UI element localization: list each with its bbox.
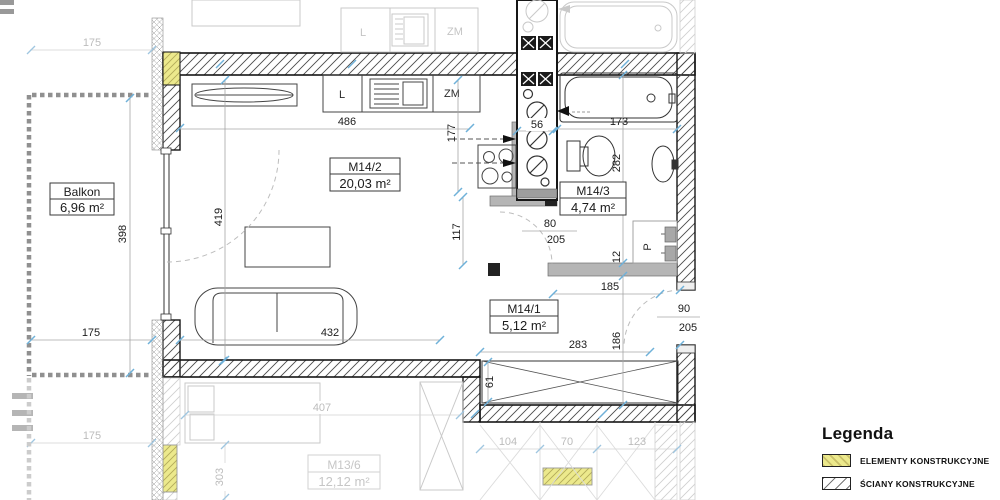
dim-432: 432 bbox=[321, 327, 339, 339]
dim-56: 56 bbox=[531, 119, 543, 131]
dim-90: 90 bbox=[678, 303, 690, 315]
wall-left-upper bbox=[163, 75, 180, 150]
svg-text:6,96 m²: 6,96 m² bbox=[60, 200, 105, 215]
installation-shaft bbox=[517, 0, 557, 200]
radiator-icon bbox=[192, 84, 297, 106]
dim-123: 123 bbox=[628, 436, 646, 448]
svg-text:Balkon: Balkon bbox=[64, 185, 101, 199]
structural-block-left bbox=[163, 445, 177, 492]
balcony-door-arc bbox=[167, 150, 279, 262]
neighbor-sink-icon bbox=[392, 14, 428, 46]
structural-block-bottom bbox=[543, 468, 592, 485]
neighbor-kitchen-zm-label: ZM bbox=[447, 26, 463, 38]
room-label-m14-3: M14/3 4,74 m² bbox=[560, 182, 626, 215]
dim-283: 283 bbox=[569, 339, 587, 351]
kitchen-sink-icon bbox=[370, 79, 427, 108]
dim-419: 419 bbox=[213, 208, 225, 226]
wall-bottom-hall bbox=[480, 405, 695, 422]
hall-wardrobe-icon bbox=[482, 361, 678, 403]
svg-text:M13/6: M13/6 bbox=[327, 458, 361, 472]
partition-hall bbox=[548, 263, 677, 276]
svg-text:M14/2: M14/2 bbox=[348, 160, 382, 174]
legend-label-structural-elements: ELEMENTY KONSTRUKCYJNE bbox=[860, 456, 989, 466]
legend-swatch-structural-elements bbox=[822, 454, 851, 467]
wall-top bbox=[163, 53, 695, 75]
room-label-m14-2: M14/2 20,03 m² bbox=[330, 158, 400, 191]
legend-label-structural-walls: ŚCIANY KONSTRUKCYJNE bbox=[860, 479, 975, 489]
dim-61: 61 bbox=[484, 376, 496, 388]
wall-right-lower bbox=[677, 345, 695, 422]
corner-mark-1 bbox=[0, 0, 14, 5]
dim-398: 398 bbox=[117, 225, 129, 243]
dim-407: 407 bbox=[313, 402, 331, 414]
stove-icon bbox=[478, 145, 516, 188]
legend-swatch-structural-walls bbox=[822, 477, 851, 490]
legend: Legenda ELEMENTY KONSTRUKCYJNE ŚCIANY KO… bbox=[822, 424, 1000, 500]
dim-175-bottom: 175 bbox=[83, 430, 101, 442]
kitchen-zm-label: ZM bbox=[444, 88, 460, 100]
corner-mark-2 bbox=[0, 9, 14, 14]
neighbor-wall-right-top bbox=[680, 0, 695, 53]
neighbor-closet-cells bbox=[480, 422, 655, 500]
wall-step bbox=[463, 377, 480, 422]
dim-303: 303 bbox=[214, 468, 226, 486]
dim-117: 117 bbox=[451, 223, 463, 241]
legend-title: Legenda bbox=[822, 424, 1000, 444]
room-label-balkon: Balkon 6,96 m² bbox=[50, 183, 114, 215]
exterior-strip-upper bbox=[152, 18, 163, 150]
entry-jamb-top bbox=[677, 282, 695, 290]
wall-bottom-living bbox=[163, 360, 480, 377]
entry-door-arc bbox=[624, 290, 681, 347]
apartment-fixtures: L ZM bbox=[29, 73, 678, 500]
dim-70: 70 bbox=[561, 436, 573, 448]
neighbor-wall-right-bottom bbox=[680, 422, 695, 500]
room-label-m13-6: M13/6 12,12 m² bbox=[308, 455, 380, 489]
neighbor-kitchen-l-label: L bbox=[360, 27, 366, 39]
dim-175-balcony: 175 bbox=[82, 327, 100, 339]
svg-text:20,03 m²: 20,03 m² bbox=[339, 176, 391, 191]
dim-lines bbox=[30, 75, 700, 405]
dim-486: 486 bbox=[338, 116, 356, 128]
dim-205-entry: 205 bbox=[679, 322, 697, 334]
neighbor-bathtub-icon bbox=[558, 2, 677, 52]
neighbor-bed-icon bbox=[185, 383, 320, 443]
dim-173: 173 bbox=[610, 116, 628, 128]
legend-item-structural-walls: ŚCIANY KONSTRUKCYJNE bbox=[822, 477, 1000, 490]
dim-175-top: 175 bbox=[83, 37, 101, 49]
dim-185: 185 bbox=[601, 281, 619, 293]
dim-12: 12 bbox=[611, 251, 623, 263]
exterior-strip-lower bbox=[152, 320, 163, 500]
neighbor-strip bbox=[655, 425, 677, 500]
svg-text:12,12 m²: 12,12 m² bbox=[318, 474, 370, 489]
toilet-icon bbox=[567, 136, 615, 176]
vent-arrows bbox=[452, 135, 516, 167]
svg-text:4,74 m²: 4,74 m² bbox=[571, 200, 616, 215]
kitchen-l-label: L bbox=[339, 89, 345, 101]
balcony-window bbox=[161, 148, 171, 320]
partition-hall-jamb bbox=[488, 263, 500, 276]
washbasin-icon bbox=[652, 146, 678, 182]
dim-186: 186 bbox=[611, 332, 623, 350]
floor-plan-page: L ZM 407 bbox=[0, 0, 1000, 500]
wall-right-upper bbox=[677, 53, 695, 290]
svg-text:M14/1: M14/1 bbox=[507, 302, 541, 316]
neighbor-wall-left bbox=[163, 378, 180, 445]
neighbor-wardrobe-icon bbox=[420, 382, 463, 490]
neighbor-wall-left-2 bbox=[163, 492, 177, 500]
washer-closet: P bbox=[633, 221, 677, 263]
room-label-m14-1: M14/1 5,12 m² bbox=[490, 300, 558, 333]
neighbor-apartment-top: L ZM bbox=[192, 0, 677, 52]
dim-282: 282 bbox=[611, 154, 623, 172]
table-icon bbox=[245, 227, 330, 267]
washer-label: P bbox=[642, 243, 654, 250]
legend-item-structural: ELEMENTY KONSTRUKCYJNE bbox=[822, 454, 1000, 467]
dim-177: 177 bbox=[446, 124, 458, 142]
dim-104: 104 bbox=[499, 436, 517, 448]
svg-text:M14/3: M14/3 bbox=[576, 184, 610, 198]
dim-80: 80 bbox=[544, 218, 556, 230]
svg-text:5,12 m²: 5,12 m² bbox=[502, 318, 547, 333]
structural-block-top bbox=[163, 52, 180, 85]
dim-205-bath: 205 bbox=[547, 234, 565, 246]
neighbor-cabinet bbox=[192, 0, 300, 26]
bathtub-icon bbox=[557, 73, 677, 122]
